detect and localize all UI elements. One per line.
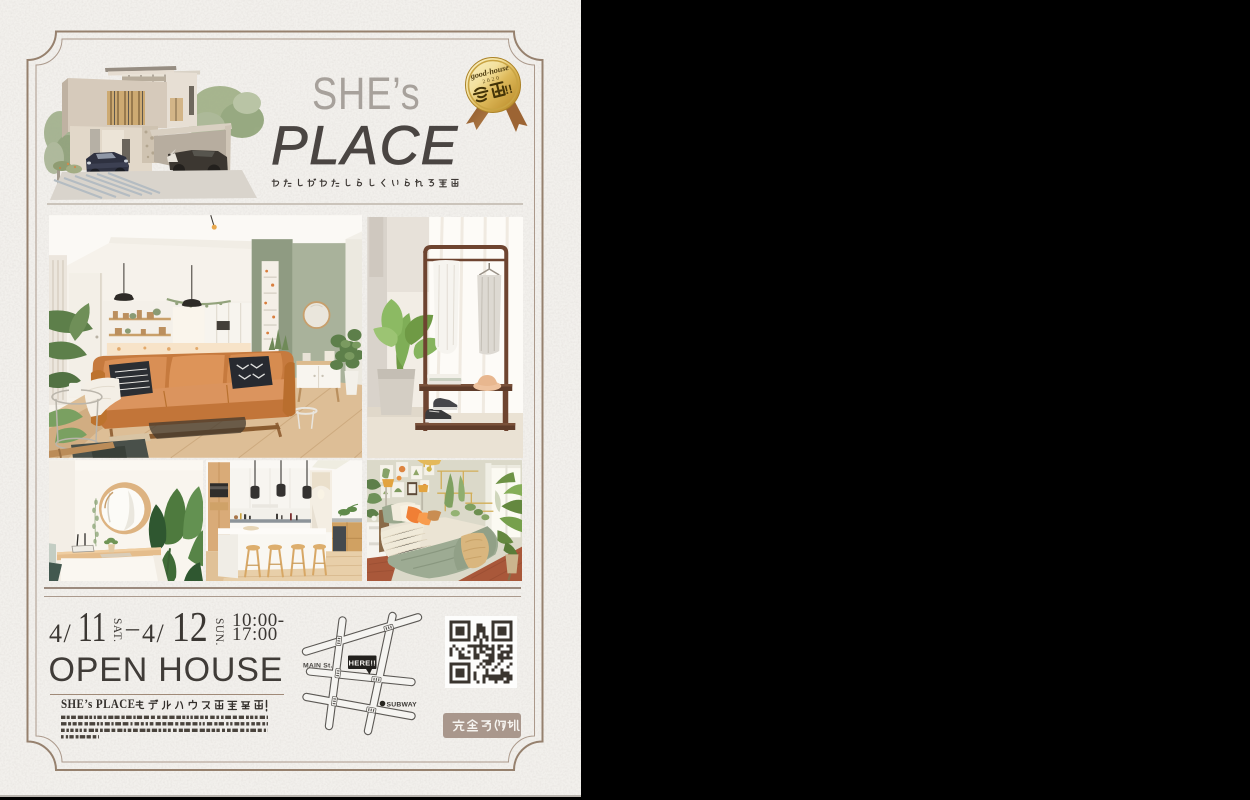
svg-text:MAIN St.: MAIN St. bbox=[303, 663, 333, 670]
svg-text:SUBWAY: SUBWAY bbox=[387, 702, 418, 709]
svg-text:HERE!!: HERE!! bbox=[349, 659, 376, 668]
